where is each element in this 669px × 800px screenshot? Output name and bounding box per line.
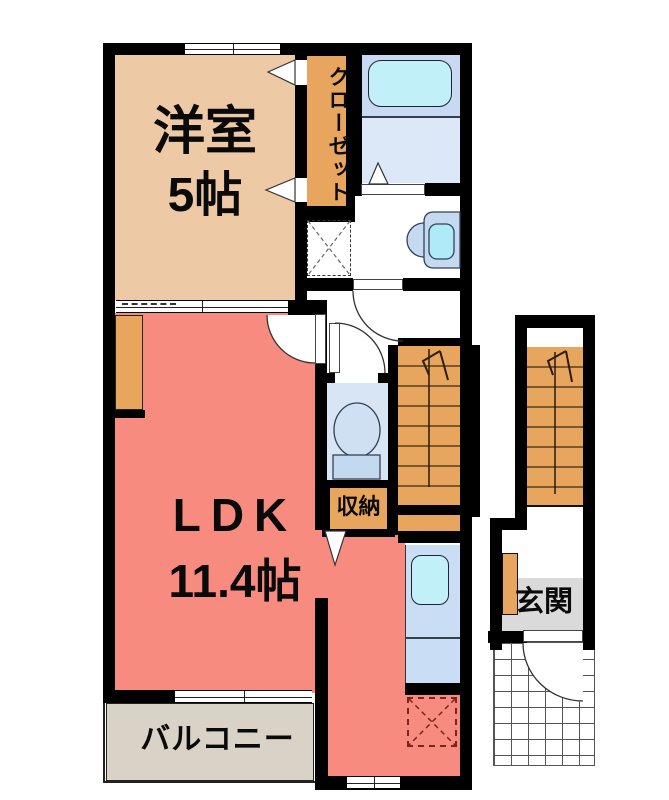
- closet-label: クローゼット: [302, 62, 348, 208]
- bathtub: [368, 60, 452, 107]
- wall-strip-stub: [115, 410, 145, 418]
- counter-divider-line: [405, 637, 460, 639]
- window-bottom: [347, 776, 400, 789]
- wall-right: [460, 43, 472, 790]
- wall-left: [103, 43, 115, 703]
- washing-machine-space: [307, 220, 351, 276]
- refrigerator-space: [407, 697, 457, 747]
- wall-toilet-stub-right: [378, 373, 398, 383]
- entrance-wall-right: [583, 315, 595, 650]
- entrance-wall-bottom-left: [488, 631, 527, 643]
- toilet-door: [329, 323, 340, 373]
- wall-top: [103, 43, 472, 55]
- window-balcony: [175, 690, 312, 703]
- stairs-main: [398, 346, 460, 505]
- toilet-door-arc: [335, 323, 385, 373]
- wall-right-bump: [472, 345, 480, 517]
- bathroom-divider-line: [362, 116, 460, 118]
- entrance-stairs: [527, 347, 583, 507]
- wall-landing-top: [398, 505, 460, 515]
- entrance-label: 玄関: [505, 588, 583, 618]
- balcony-outer-line-left: [103, 703, 105, 783]
- entrance-door: [523, 630, 583, 642]
- toilet-room: [327, 383, 388, 480]
- toilet-door-opening: [335, 373, 378, 383]
- wall-washroom-bottom-right: [403, 278, 460, 291]
- bathroom-washing-area: [362, 117, 460, 183]
- floor-plan: 洋室 5帖 クローゼット LDK 11.4帖 収納 バルコニー 玄関: [0, 0, 669, 800]
- wall-counter-bottom: [405, 683, 472, 695]
- kitchen-floor: [327, 598, 405, 683]
- stairs-main-landing: [398, 515, 460, 531]
- ldk-door: [315, 314, 326, 364]
- washbasin: [407, 212, 460, 268]
- ldk-size: 11.4帖: [120, 558, 350, 605]
- storage-label: 収納: [330, 496, 387, 518]
- wall-washroom-bottom-left: [295, 278, 353, 291]
- balcony-label: バルコニー: [125, 725, 310, 756]
- washroom-door-arc: [353, 291, 403, 341]
- wall-partition-corner: [288, 300, 327, 315]
- entrance-wall-left-upper: [515, 315, 527, 525]
- wall-bath-washroom: [425, 183, 460, 196]
- western-room-size: 5帖: [115, 172, 295, 221]
- wall-landing-bottom: [398, 531, 472, 543]
- partition-dashed-track: [122, 303, 176, 307]
- entrance-stairs-edge: [527, 505, 583, 507]
- bathroom-door: [361, 184, 425, 195]
- wall-toilet-stub-left: [327, 373, 335, 383]
- kitchen-sink: [411, 555, 449, 605]
- western-room-name: 洋室: [115, 106, 295, 159]
- ldk-counter-strip: [115, 315, 143, 410]
- ldk-name: LDK: [145, 492, 325, 539]
- porch-tiles: [493, 642, 595, 766]
- wall-bath-left: [350, 43, 362, 196]
- wall-kitchen-partition: [315, 598, 328, 790]
- wall-balcony-top: [103, 690, 175, 703]
- balcony-outer-line-bottom: [103, 781, 319, 783]
- wall-stairs-top: [398, 338, 472, 346]
- window-top: [185, 43, 280, 55]
- washroom-door: [353, 279, 403, 290]
